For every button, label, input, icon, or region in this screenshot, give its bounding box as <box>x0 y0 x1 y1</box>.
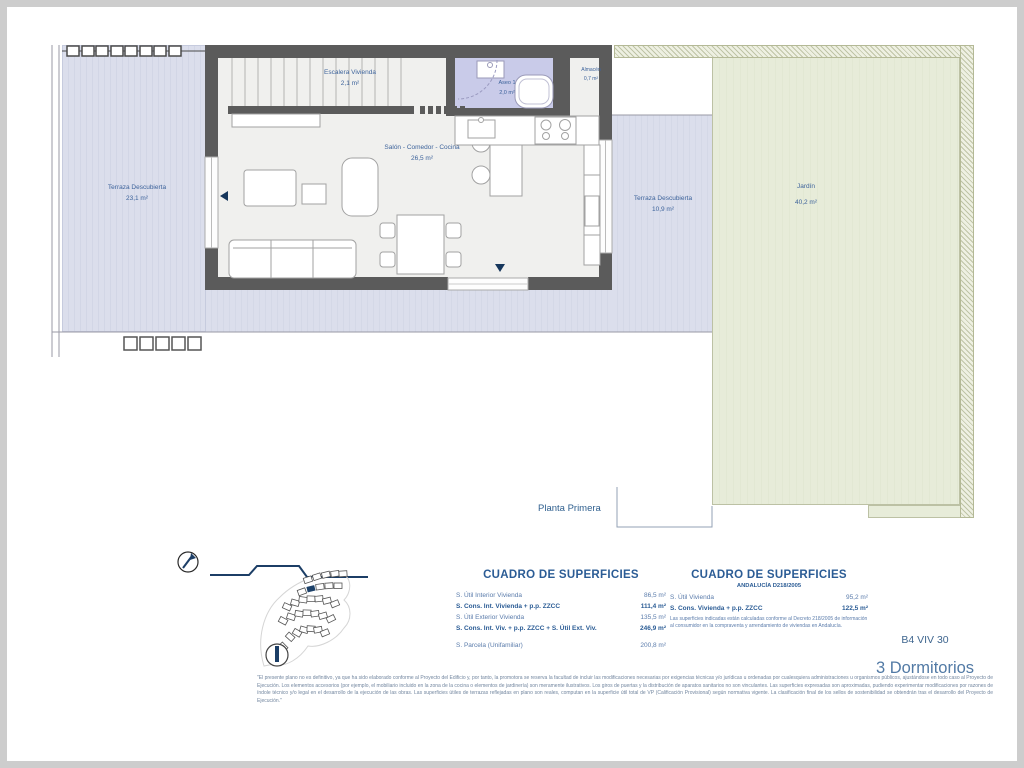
row-value: 200,8 m² <box>640 642 666 649</box>
window-left <box>205 157 218 248</box>
table-subtitle: ANDALUCÍA D218/2005 <box>670 583 868 589</box>
room-name: Terraza Descubierta <box>108 183 166 193</box>
room-area: 23,1 m² <box>108 194 166 204</box>
surfaces-table-andalucia: CUADRO DE SUPERFICIES ANDALUCÍA D218/200… <box>670 569 868 630</box>
floor-leader-line <box>617 487 712 527</box>
row-label: S. Parcela (Unifamiliar) <box>456 642 608 649</box>
room-area: 10,9 m² <box>634 205 692 215</box>
room-area: 2,0 m² <box>498 89 515 98</box>
row-label: S. Cons. Int. Vivienda + p.p. ZZCC <box>456 603 608 610</box>
room-label-almacen: Almacén 0,7 m² <box>581 67 600 83</box>
row-value: 135,5 m² <box>640 614 666 621</box>
row-value: 86,5 m² <box>644 592 666 599</box>
table-row: S. Útil Interior Vivienda 86,5 m² <box>456 592 666 599</box>
row-label: S. Cons. Vivienda + p.p. ZZCC <box>670 605 822 612</box>
room-name: Terraza Descubierta <box>634 194 692 204</box>
table-title: CUADRO DE SUPERFICIES <box>456 569 666 581</box>
table-row: S. Cons. Int. Vivienda + p.p. ZZCC 111,4… <box>456 603 666 610</box>
row-value: 111,4 m² <box>641 603 666 610</box>
table-row: S. Cons. Int. Viv. + p.p. ZZCC + S. Útil… <box>456 625 666 632</box>
row-label: S. Cons. Int. Viv. + p.p. ZZCC + S. Útil… <box>456 625 608 632</box>
row-value: 95,2 m² <box>846 594 868 601</box>
room-label-aseo: Aseo 1 2,0 m² <box>498 79 515 97</box>
floor-plan-sheet: Terraza Descubierta 23,1 m² Escalera Viv… <box>0 0 1024 768</box>
door-right <box>599 140 612 253</box>
row-label: S. Útil Exterior Vivienda <box>456 614 608 621</box>
room-label-escalera: Escalera Vivienda 2,1 m² <box>324 68 376 89</box>
table-row: S. Útil Exterior Vivienda 135,5 m² <box>456 614 666 621</box>
surfaces-table-general: CUADRO DE SUPERFICIES S. Útil Interior V… <box>456 569 666 649</box>
room-label-terraza-derecha: Terraza Descubierta 10,9 m² <box>634 194 692 215</box>
unit-code: B4 VIV 30 <box>840 634 1010 646</box>
table-note: Las superficies indicadas están calculad… <box>670 616 868 630</box>
table-title: CUADRO DE SUPERFICIES <box>670 569 868 581</box>
table-row: S. Parcela (Unifamiliar) 200,8 m² <box>456 642 666 649</box>
row-label: S. Útil Vivienda <box>670 594 822 601</box>
room-name: Escalera Vivienda <box>324 68 376 78</box>
door-bottom <box>448 278 528 290</box>
room-area: 26,5 m² <box>383 154 461 164</box>
row-value: 122,5 m² <box>842 605 868 612</box>
north-arrow-icon <box>178 552 198 572</box>
room-label-salon: Salón - Comedor - Cocina 26,5 m² <box>383 143 461 164</box>
table-rows: S. Útil Vivienda 95,2 m² S. Cons. Vivien… <box>670 594 868 612</box>
room-area: 40,2 m² <box>795 198 817 208</box>
room-label-terraza-izquierda: Terraza Descubierta 23,1 m² <box>108 183 166 204</box>
table-rows: S. Útil Interior Vivienda 86,5 m² S. Con… <box>456 592 666 649</box>
highlighted-unit-marker <box>306 585 315 592</box>
room-area: 2,1 m² <box>324 79 376 89</box>
furniture <box>229 114 600 278</box>
room-area: 0,7 m² <box>581 76 600 84</box>
floor-title: Planta Primera <box>538 503 601 514</box>
room-name: Salón - Comedor - Cocina <box>383 143 461 153</box>
table-row: S. Útil Vivienda 95,2 m² <box>670 594 868 601</box>
exterior-steps <box>124 337 201 350</box>
room-name: Almacén <box>581 67 600 75</box>
unit-identification: B4 VIV 30 3 Dormitorios <box>840 634 1010 678</box>
room-name: Aseo 1 <box>498 79 515 88</box>
pergola-louvers <box>62 46 206 56</box>
table-row: S. Cons. Vivienda + p.p. ZZCC 122,5 m² <box>670 605 868 612</box>
legal-disclaimer: "El presente plano no es definitivo, ya … <box>257 675 993 705</box>
room-name: Jardín <box>795 182 817 192</box>
north-arrow-icon-siteplan <box>266 644 288 666</box>
row-value: 246,9 m² <box>640 625 666 632</box>
room-label-jardin: Jardín 40,2 m² <box>795 182 817 208</box>
row-label: S. Útil Interior Vivienda <box>456 592 608 599</box>
